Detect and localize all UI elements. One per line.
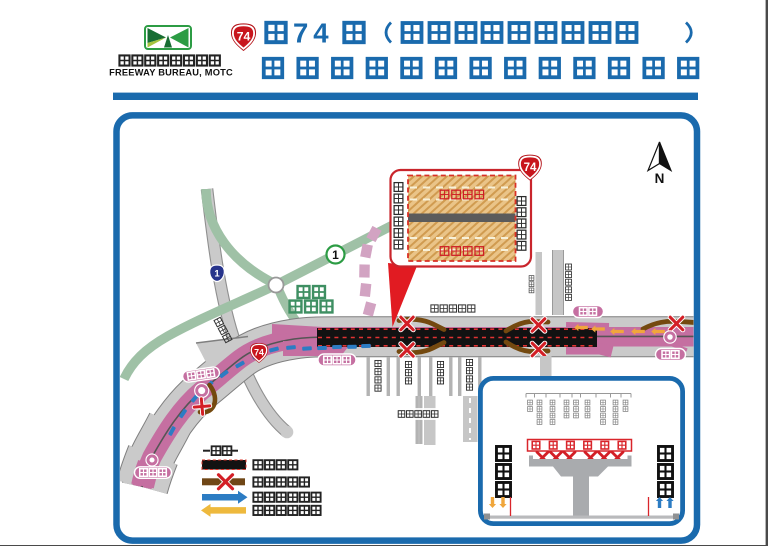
svg-text:74: 74 [293, 18, 334, 49]
svg-text:N: N [655, 171, 665, 186]
svg-text:74: 74 [524, 162, 537, 174]
svg-text:74: 74 [237, 30, 251, 44]
svg-text:FREEWAY BUREAU, MOTC: FREEWAY BUREAU, MOTC [109, 68, 233, 78]
svg-text:1: 1 [332, 248, 339, 262]
svg-text:1: 1 [214, 269, 220, 280]
svg-text:74: 74 [254, 347, 264, 357]
